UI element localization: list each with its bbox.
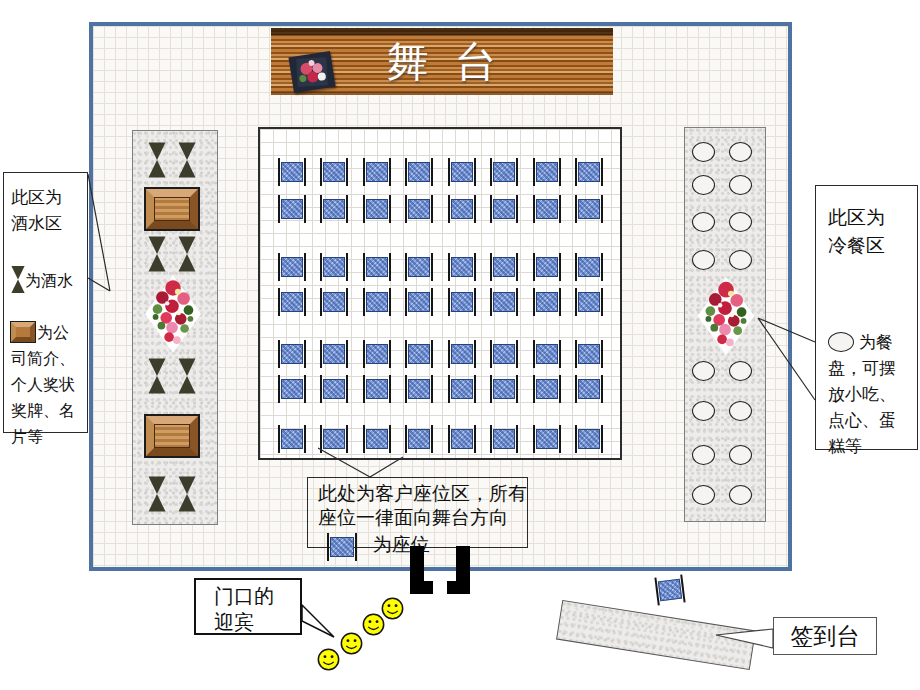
door-right-post-foot [447, 581, 470, 594]
seat [578, 344, 600, 364]
seat [451, 162, 473, 182]
plate [729, 212, 752, 232]
seat [578, 379, 600, 399]
plate-icon [828, 332, 854, 352]
legend-item: 为酒水 [11, 265, 82, 294]
plate [692, 361, 715, 381]
seat [366, 429, 388, 449]
seat [493, 199, 515, 219]
seat [323, 199, 345, 219]
seat [408, 199, 430, 219]
plate [729, 250, 752, 270]
seat [536, 344, 558, 364]
seat [451, 379, 473, 399]
plate [729, 445, 752, 465]
seat-icon [330, 537, 354, 557]
seat [451, 292, 473, 312]
seating-callout: 此处为客户座位区，所有 座位一律面向舞台方向 为座位 [307, 477, 528, 548]
drink-area-callout: 此区为 酒水区 为酒水 为公司简介、个人奖状奖牌、名片等 [3, 172, 88, 433]
signin-label: 签到台 [791, 621, 860, 652]
seat [366, 162, 388, 182]
plate [692, 212, 715, 232]
seat [451, 199, 473, 219]
seat [536, 257, 558, 277]
callout-title: 此区为 酒水区 [11, 185, 82, 237]
flower-bouquet [144, 273, 202, 355]
seat [323, 344, 345, 364]
seat [366, 292, 388, 312]
plate [692, 175, 715, 195]
seat [536, 292, 558, 312]
plate [692, 142, 715, 162]
door-left-post-foot [410, 581, 433, 594]
hourglass-pair [133, 236, 219, 272]
seat [493, 292, 515, 312]
plate [692, 445, 715, 465]
hourglass-pair [133, 358, 219, 394]
seat [536, 379, 558, 399]
stage-label: 舞台 [361, 41, 523, 83]
seat [451, 257, 473, 277]
hourglass-icon [148, 236, 166, 272]
seat [493, 257, 515, 277]
wooden-box [146, 189, 198, 229]
seat [281, 344, 303, 364]
signin-seat [658, 579, 682, 602]
plate [729, 361, 752, 381]
signin-table [556, 600, 756, 670]
seat [281, 162, 303, 182]
seat [281, 379, 303, 399]
plate [692, 250, 715, 270]
wooden-box-icon [11, 322, 35, 342]
hourglass-icon [11, 265, 25, 294]
hourglass-icon [148, 476, 166, 512]
seat [451, 429, 473, 449]
seat [366, 199, 388, 219]
seat [366, 379, 388, 399]
plate [729, 401, 752, 421]
buffet-area-callout: 此区为 冷餐区 为餐盘，可摆放小吃、点心、蛋糕等 [815, 185, 918, 450]
seat [536, 199, 558, 219]
callout-text: 此处为客户座位区，所有 座位一律面向舞台方向 [318, 482, 527, 530]
seat [493, 344, 515, 364]
seat [281, 199, 303, 219]
hourglass-icon [148, 358, 166, 394]
seat [578, 429, 600, 449]
legend-label: 为公司简介、个人奖状奖牌、名片等 [11, 324, 75, 445]
legend-item: 为餐盘，可摆放小吃、点心、蛋糕等 [828, 330, 911, 460]
hourglass-icon [178, 236, 196, 272]
entrance-greeter-callout: 门口的 迎宾 [194, 578, 302, 635]
signin-callout: 签到台 [773, 617, 877, 655]
plate [729, 485, 752, 505]
seat [366, 257, 388, 277]
seat [408, 162, 430, 182]
hourglass-icon [178, 358, 196, 394]
hourglass-icon [148, 142, 166, 178]
seat [323, 379, 345, 399]
seat [493, 162, 515, 182]
stage-flower-photo-icon [288, 51, 335, 93]
seat [408, 257, 430, 277]
greeter-smiley-icon [340, 632, 363, 655]
drink-strip [132, 130, 218, 525]
buffet-strip [684, 127, 766, 522]
greeter-smiley-icon [381, 597, 404, 620]
hourglass-icon [178, 142, 196, 178]
legend-label: 为酒水 [25, 272, 73, 289]
seat [323, 257, 345, 277]
seat [281, 257, 303, 277]
plate [729, 175, 752, 195]
callout-title: 此区为 冷餐区 [828, 204, 911, 260]
plate [692, 485, 715, 505]
seat [408, 379, 430, 399]
seat [578, 199, 600, 219]
seat [323, 292, 345, 312]
seat [451, 344, 473, 364]
seat [323, 429, 345, 449]
legend-item: 为公司简介、个人奖状奖牌、名片等 [11, 320, 82, 450]
seat [323, 162, 345, 182]
seat [493, 379, 515, 399]
seat [366, 344, 388, 364]
seat [536, 429, 558, 449]
plate [692, 401, 715, 421]
hourglass-icon [178, 476, 196, 512]
seat [408, 429, 430, 449]
plate [729, 142, 752, 162]
flower-bouquet [695, 276, 757, 356]
hourglass-pair [133, 142, 219, 178]
seat [493, 429, 515, 449]
seat [578, 162, 600, 182]
seat [408, 292, 430, 312]
stage: 舞台 [271, 28, 613, 95]
hourglass-pair [133, 476, 219, 512]
seat [536, 162, 558, 182]
seat [578, 292, 600, 312]
seat [408, 344, 430, 364]
greeter-smiley-icon [317, 648, 340, 671]
wooden-box [146, 416, 198, 456]
seat [281, 429, 303, 449]
venue-floor-plan: 舞台 此区为 酒水区 为酒水 为公司简介、个人奖状奖牌、名片等 此区为 冷餐区 … [0, 0, 920, 690]
seat [578, 257, 600, 277]
seat-grid [258, 127, 622, 460]
seat [281, 292, 303, 312]
